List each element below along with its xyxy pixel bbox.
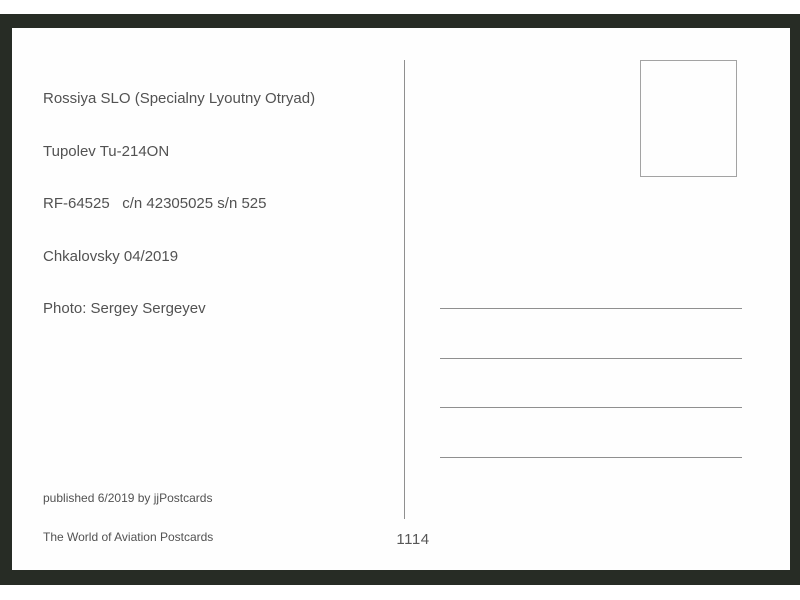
caption-registration: RF-64525 c/n 42305025 s/n 525 [43,195,315,213]
caption-photographer: Photo: Sergey Sergeyev [43,300,315,318]
postcard-back: Rossiya SLO (Specialny Lyoutny Otryad) T… [12,28,790,570]
publisher-tagline: The World of Aviation Postcards [43,531,311,544]
card-number: 1114 [390,531,436,548]
photo-caption-block: Rossiya SLO (Specialny Lyoutny Otryad) T… [43,55,315,353]
publisher-imprint-group: published 6/2019 by jjPostcards The Worl… [43,467,311,569]
address-line [440,457,742,458]
page-background: Rossiya SLO (Specialny Lyoutny Otryad) T… [0,0,800,600]
publisher-published-line: published 6/2019 by jjPostcards [43,492,311,505]
address-line [440,308,742,309]
caption-aircraft-type: Tupolev Tu-214ON [43,143,315,161]
address-line [440,407,742,408]
address-line [440,358,742,359]
dark-mat: Rossiya SLO (Specialny Lyoutny Otryad) T… [0,14,800,585]
caption-operator: Rossiya SLO (Specialny Lyoutny Otryad) [43,90,315,108]
caption-location-date: Chkalovsky 04/2019 [43,248,315,266]
center-divider-line [404,60,405,519]
stamp-box [640,60,737,177]
publisher-block: published 6/2019 by jjPostcards The Worl… [43,441,311,600]
